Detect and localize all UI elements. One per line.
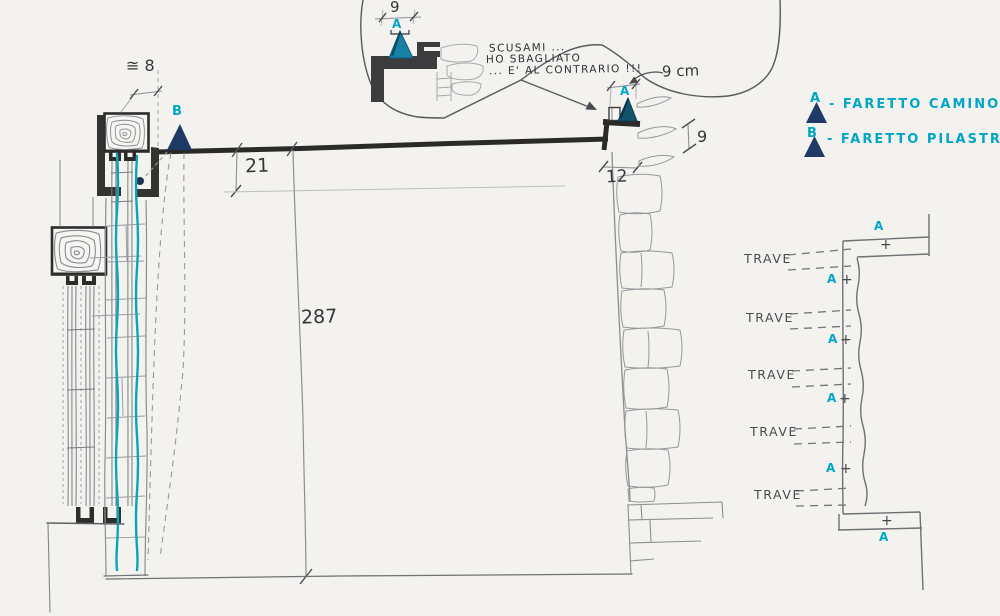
legend-pilastro-label: - FARETTO PILASTRO bbox=[827, 133, 1000, 146]
dimension-287 bbox=[293, 150, 312, 584]
track-bracket bbox=[66, 276, 78, 285]
bubble-stone-sketch bbox=[437, 44, 483, 101]
plan-marker-a: A bbox=[879, 531, 888, 543]
marker-a-pillar-label: A bbox=[620, 85, 629, 97]
plan-wall-right bbox=[857, 258, 867, 506]
legend-camino-label: - FARETTO CAMINO bbox=[829, 98, 1000, 111]
dim-12-label: 12 bbox=[606, 168, 629, 186]
bubble-channel-profile bbox=[417, 42, 440, 57]
drawing-linework bbox=[0, 0, 1000, 616]
glass-block bbox=[609, 108, 620, 121]
dim-approx8-label: ≅ 8 bbox=[126, 58, 155, 74]
stone-plinth bbox=[627, 502, 723, 574]
plan-marker-a: A bbox=[828, 333, 837, 345]
ceiling-line bbox=[155, 139, 608, 152]
dim-287-label: 287 bbox=[301, 307, 338, 327]
track-bracket bbox=[124, 152, 136, 161]
plan-trave-label: TRAVE bbox=[754, 489, 802, 502]
dim-21-label: 21 bbox=[245, 157, 270, 177]
floor-lines bbox=[47, 523, 632, 612]
floor-channel bbox=[76, 507, 94, 523]
right-channel-leg bbox=[136, 147, 159, 197]
faretto-b-triangle bbox=[167, 124, 192, 150]
plan-marker-a: A bbox=[827, 273, 836, 285]
dim-9-right-label: 9 bbox=[697, 129, 707, 145]
right-pillar bbox=[603, 98, 640, 502]
bubble-detail-sketch bbox=[371, 10, 483, 102]
plan-marker-a: A bbox=[827, 392, 836, 404]
pillar-left-edge bbox=[612, 152, 630, 502]
dimension-9cm bbox=[607, 72, 663, 106]
plan-marker-plus: + bbox=[839, 392, 851, 406]
faretto-b-projection-dashes bbox=[144, 152, 185, 560]
plan-marker-plus: + bbox=[880, 238, 892, 252]
marker-b-label: B bbox=[172, 105, 182, 118]
track-bracket bbox=[82, 276, 96, 285]
plan-marker-plus: + bbox=[841, 273, 853, 287]
bubble-marker-a-label: A bbox=[392, 18, 401, 30]
hand-sketch-canvas: 9 A SCUSAMI ... HO SBAGLIATO ... E' AL C… bbox=[0, 0, 1000, 616]
bubble-dim-label: 9 bbox=[390, 0, 400, 15]
wall-reference-lines bbox=[60, 160, 93, 227]
plan-trave-label: TRAVE bbox=[744, 253, 792, 266]
plan-marker-plus: + bbox=[840, 462, 852, 476]
plan-marker-plus: + bbox=[881, 514, 893, 528]
track-bracket bbox=[109, 152, 121, 161]
upper-track-lines bbox=[111, 161, 133, 506]
plan-marker-plus: + bbox=[840, 333, 852, 347]
plan-trave-label: TRAVE bbox=[746, 312, 794, 325]
legend-camino-key: A bbox=[810, 92, 820, 105]
plan-marker-a: A bbox=[874, 220, 883, 232]
plan-trave-label: TRAVE bbox=[748, 369, 796, 382]
legend-pilastro-key: B bbox=[807, 127, 817, 140]
label-9cm: 9 cm bbox=[662, 63, 700, 79]
plan-marker-a: A bbox=[826, 462, 835, 474]
dimension-9-right bbox=[682, 119, 696, 153]
plan-trave-label: TRAVE bbox=[750, 426, 798, 439]
bubble-beam-profile bbox=[371, 56, 437, 102]
bubble-text-line3: ... E' AL CONTRARIO !!! bbox=[489, 64, 642, 77]
